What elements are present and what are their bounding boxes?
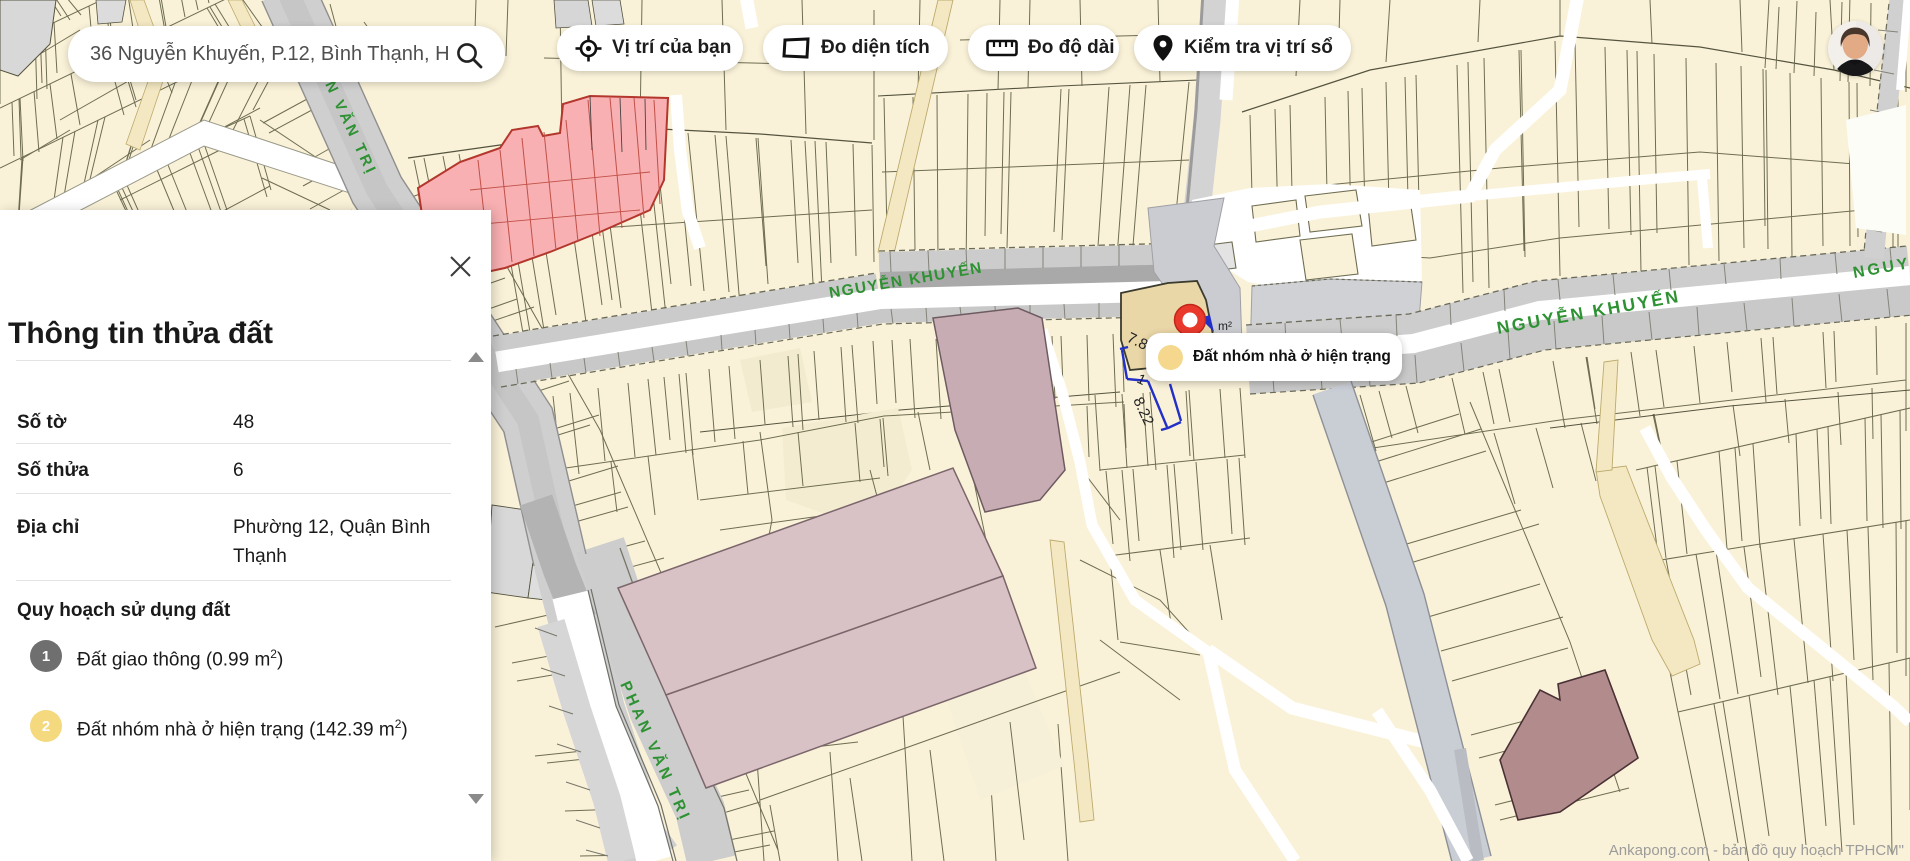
svg-text:m²: m² (1218, 319, 1232, 333)
